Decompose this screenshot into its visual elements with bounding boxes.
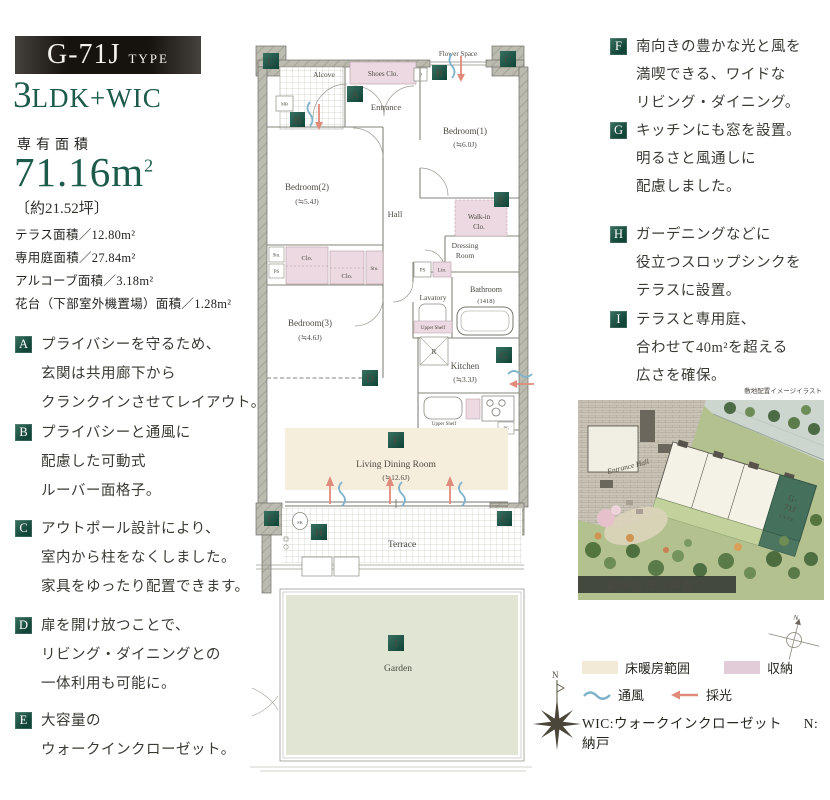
svg-text:Clo.: Clo.: [341, 273, 352, 280]
alcove: Alcove MB: [276, 67, 343, 129]
kitchen-cabinet: [466, 399, 480, 419]
badge-e: E: [498, 195, 505, 207]
svg-text:Clo.: Clo.: [301, 255, 312, 262]
type-word: TYPE: [128, 51, 169, 67]
feature-g: G キッチンにも窓を設置。明るさと風通しに配慮しました。: [610, 117, 801, 201]
ldr-label: Living Dining Room: [356, 460, 436, 470]
svg-text:(1418): (1418): [477, 298, 494, 305]
planter-box: [334, 557, 359, 576]
survey-compass-icon: N: [764, 610, 824, 662]
svg-text:Lavatory: Lavatory: [419, 293, 446, 302]
svg-text:PS: PS: [420, 269, 426, 274]
svg-text:Shoes Clo.: Shoes Clo.: [368, 70, 399, 78]
type-title-box: G-71J TYPE: [15, 36, 201, 74]
svg-text:R: R: [432, 348, 437, 356]
bedroom1-size: (≒6.0J): [453, 140, 477, 149]
badge-i: I: [394, 638, 398, 650]
detail-alcove: アルコーブ面積／3.18m²: [15, 270, 231, 293]
svg-text:Upper Shelf: Upper Shelf: [421, 326, 446, 331]
ventilation-icon: [582, 689, 612, 701]
daylight-icon: [670, 689, 700, 701]
legend-row-areas: 床暖房範囲 収納: [582, 658, 830, 677]
abbreviation-note: WIC:ウォークインクローゼット N:納戸: [582, 712, 830, 752]
feature-h-badge: H: [610, 226, 627, 243]
svg-text:Entrance: Entrance: [371, 102, 401, 112]
dressing-label2: Room: [456, 251, 475, 260]
wic-note: WIC:ウォークインクローゼット: [582, 716, 782, 731]
feature-i-badge: I: [610, 311, 627, 328]
svg-text:Alcove: Alcove: [313, 70, 335, 79]
lavatory: Lavatory Upper Shelf: [414, 293, 452, 333]
feature-c-badge: C: [15, 520, 32, 537]
badge-c: C: [501, 514, 508, 526]
floor-plan: Flower Space Alcove MB Shoes Clo. Entran…: [250, 40, 555, 785]
bedroom1-label: Bedroom(1): [443, 126, 487, 136]
badge-c: C: [268, 514, 275, 526]
fridge-space: R: [420, 337, 448, 365]
bedroom2-size: (≒5.4J): [295, 197, 319, 206]
bedroom3-size: (≒4.6J): [298, 333, 322, 342]
svg-text:Lin.: Lin.: [437, 268, 447, 274]
svg-text:Upper Shelf: Upper Shelf: [432, 422, 457, 427]
kitchen: Kitchen (≒3.3J) Upper Shelf PS: [418, 361, 519, 434]
ldr-size: (≒12.6J): [382, 473, 410, 482]
svg-text:Kitchen: Kitchen: [451, 361, 480, 371]
svg-text:MB: MB: [281, 102, 288, 107]
feature-g-badge: G: [610, 122, 627, 139]
layout-label: 3LDK+WIC: [13, 74, 162, 117]
bedroom3-label: Bedroom(3): [288, 318, 332, 328]
feature-b-badge: B: [15, 424, 32, 441]
kitchen-sink: [424, 397, 462, 419]
svg-text:Sto.: Sto.: [371, 267, 379, 272]
feature-f-badge: F: [610, 38, 627, 55]
feature-d-badge: D: [15, 617, 32, 634]
dressing-label1: Dressing: [452, 241, 479, 250]
svg-text:Sto.: Sto.: [273, 254, 281, 259]
detail-garden: 専用庭面積／27.84m²: [15, 247, 231, 270]
feature-b: B プライバシーと通風に配慮した可動式ルーバー面格子。: [15, 419, 191, 506]
badge-d: D: [366, 373, 374, 385]
sitemap-caption: 敷地配置イメージイラスト: [744, 386, 822, 395]
svg-text:(≒3.3J): (≒3.3J): [453, 375, 477, 384]
badge-a: A: [351, 89, 359, 101]
badge-f: F: [393, 435, 399, 447]
storage-band: Sto. PS Clo. Clo. Sto.: [269, 247, 383, 284]
feature-e-badge: E: [15, 712, 32, 729]
feature-a-badge: A: [15, 336, 32, 353]
ventilation-label: 通風: [618, 685, 644, 704]
badge-c: C: [267, 56, 274, 68]
flower-space: Flower Space: [430, 50, 486, 65]
svg-text:N: N: [552, 670, 559, 680]
area-details: テラス面積／12.80m² 専用庭面積／27.84m² アルコーブ面積／3.18…: [15, 224, 231, 316]
daylight-label: 採光: [706, 685, 732, 704]
svg-text:PS: PS: [274, 270, 280, 275]
south-windows: [285, 499, 508, 509]
storage-swatch: [724, 661, 760, 674]
shrub-lines: [252, 688, 278, 716]
site-map: 敷地配置イメージイラスト Entrance Hall G- 71J TYPE: [578, 386, 824, 602]
floor-heating-swatch: [582, 661, 618, 674]
badge-b: B: [436, 68, 443, 80]
badge-b: B: [294, 115, 301, 127]
svg-text:Clo.: Clo.: [473, 223, 485, 231]
area-value: 71.16m2: [14, 148, 154, 196]
feature-e: E 大容量のウォークインクローゼット。: [15, 707, 236, 765]
feature-f: F 南向きの豊かな光と風を満喫できる、ワイドなリビング・ダイニング。: [610, 33, 801, 117]
storage-label: 収納: [767, 658, 793, 677]
badge-h: H: [315, 527, 323, 539]
svg-text:Garden: Garden: [384, 664, 412, 674]
type-code: G-71J: [47, 36, 120, 74]
feature-d: D 扉を開け放つことで、リビング・ダイニングとの一体利用も可能に。: [15, 612, 221, 699]
detail-terrace: テラス面積／12.80m²: [15, 224, 231, 247]
feature-i: I テラスと専用庭、合わせて40m²を超える広さを確保。: [610, 306, 788, 390]
compass-icon: N: [526, 666, 590, 756]
badge-c: C: [504, 54, 511, 66]
badge-g: G: [500, 350, 508, 362]
terrace: Terrace SK: [256, 508, 524, 576]
detail-flowerbed: 花台（下部室外機置場）面積／1.28m²: [15, 293, 231, 316]
svg-text:SK: SK: [297, 520, 304, 525]
sitemap-illustration: Entrance Hall G- 71J TYPE 観桜の沢（中庭）: [578, 400, 824, 600]
svg-text:Bathroom: Bathroom: [470, 285, 503, 294]
legend: 床暖房範囲 収納 通風 採光 WIC:ウォークインクローゼット N:納戸: [582, 658, 830, 752]
north-window-icons: [450, 54, 466, 82]
bathroom: Bathroom (1418): [457, 285, 513, 335]
garden: Garden: [280, 589, 524, 761]
area-tsubo: 〔約21.52坪〕: [15, 197, 109, 218]
feature-c: C アウトポール設計により、室内から柱をなくしました。家具をゆったり配置できます…: [15, 515, 250, 602]
feature-h: H ガーデニングなどに役立つスロップシンクをテラスに設置。: [610, 221, 801, 305]
pond-banner-label: 観桜の沢（中庭）: [607, 579, 707, 592]
legend-row-icons: 通風 採光: [582, 685, 830, 704]
svg-text:Flower Space: Flower Space: [439, 50, 477, 58]
feature-a: A プライバシーを守るため、玄関は共用廊下からクランクインさせてレイアウト。: [15, 331, 266, 418]
floor-heating-label: 床暖房範囲: [625, 658, 690, 677]
svg-text:Terrace: Terrace: [388, 540, 416, 550]
hall-label: Hall: [388, 209, 403, 219]
svg-text:Walk-in: Walk-in: [468, 213, 491, 221]
planter-box: [302, 557, 332, 576]
bedroom2-label: Bedroom(2): [285, 182, 329, 192]
